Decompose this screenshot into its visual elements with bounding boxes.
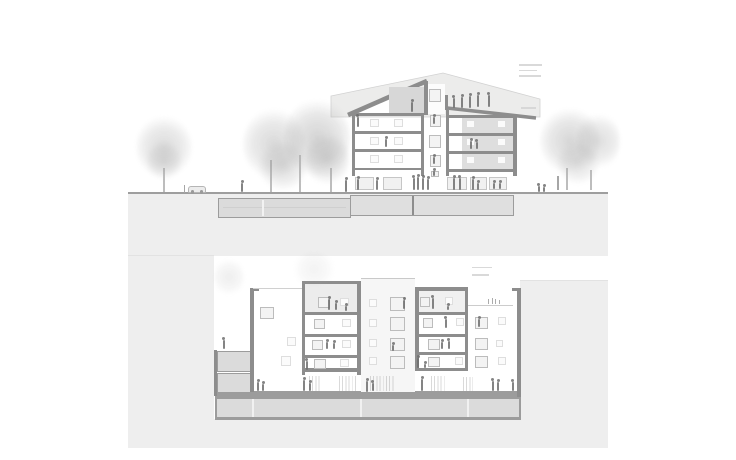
midleft-attic-room: [305, 284, 357, 311]
win-sprite: [260, 307, 274, 319]
person-sprite: [326, 342, 328, 349]
attic-wall: [424, 81, 428, 115]
floor-slab: [446, 115, 517, 118]
win-sprite: [475, 338, 488, 350]
midright-slab: [415, 352, 468, 355]
store-sprite: [355, 177, 374, 191]
floor-slab: [352, 113, 424, 116]
person-sprite: [309, 383, 311, 391]
winc-sprite: [281, 356, 291, 366]
tree-sprite: [556, 140, 600, 184]
win-sprite: [312, 340, 323, 350]
tree-sprite: [136, 116, 192, 178]
win-sprite: [314, 319, 325, 329]
right-parapet-cap: [512, 288, 521, 291]
person-sprite: [345, 180, 347, 192]
lower-terrain-right: [520, 280, 608, 448]
winc-sprite: [287, 337, 296, 346]
car: [188, 186, 206, 193]
midright-slab: [415, 334, 468, 337]
person-sprite: [262, 384, 264, 392]
trunk-sprite: [566, 168, 568, 190]
midleft-slab: [302, 312, 361, 315]
store-sprite: [489, 177, 507, 191]
left-block-cut-wall: [250, 288, 254, 392]
midright-bottom-slab: [415, 368, 468, 371]
person-sprite: [376, 180, 378, 190]
midleft-bottom-slab: [302, 368, 361, 371]
win-sprite: [314, 359, 326, 369]
tree-sprite: [258, 140, 308, 190]
bar-sprite: [472, 267, 492, 269]
winc-sprite: [456, 318, 464, 326]
trunk-sprite: [590, 170, 592, 190]
plant-sprite: [488, 299, 489, 304]
midright-wall-left: [415, 287, 419, 371]
plant-sprite: [495, 299, 496, 304]
person-sprite: [427, 179, 429, 190]
win-sprite: [431, 171, 439, 178]
winc-sprite: [342, 319, 351, 327]
trunk-sprite: [270, 160, 272, 192]
midright-attic-room: [419, 291, 465, 312]
hatch-sprite: [431, 376, 447, 391]
right-block-roof-line: [468, 305, 513, 306]
garage-deck-line: [223, 207, 346, 208]
post-sprite: [557, 176, 559, 190]
person-sprite: [357, 179, 359, 190]
person-sprite: [257, 382, 259, 392]
person-sprite: [417, 177, 419, 190]
store-sprite: [470, 177, 487, 191]
lower-terrain-bottom: [213, 419, 520, 448]
interior-wall: [421, 115, 424, 176]
exterior-wall-left: [352, 112, 355, 176]
person-sprite: [453, 178, 455, 190]
left-block-roof-line: [253, 288, 302, 289]
win-sprite: [423, 318, 433, 328]
right-cut-wall: [517, 288, 521, 397]
midright-slab: [415, 312, 468, 315]
person-sprite: [223, 340, 225, 349]
hatch-sprite: [309, 376, 322, 391]
interior-wall: [446, 110, 449, 176]
hatch-sprite: [339, 376, 357, 391]
winc-sprite: [394, 137, 403, 145]
midleft-wall-left: [302, 281, 305, 375]
person-sprite: [493, 183, 495, 190]
plant-sprite: [499, 300, 500, 304]
lower-terrain-left: [128, 255, 214, 448]
midleft-slab: [302, 334, 361, 337]
person-sprite: [478, 319, 480, 327]
winc-sprite: [455, 357, 463, 365]
win-sprite: [475, 317, 488, 329]
winc-sprite: [498, 317, 506, 325]
winc-sprite: [496, 340, 503, 347]
basement-under-building: [350, 195, 514, 217]
floor-slab: [446, 169, 517, 172]
drawing-sheet: [0, 0, 736, 460]
person-sprite: [413, 178, 415, 190]
person-sprite: [433, 171, 435, 176]
basement-divider: [252, 399, 254, 417]
winc-sprite: [370, 119, 379, 127]
floor-slab: [352, 149, 424, 152]
basement-parking: [215, 397, 521, 420]
person-sprite: [499, 183, 501, 190]
win-sprite: [428, 339, 440, 350]
tree-sprite: [146, 140, 182, 180]
floor-slab: [352, 168, 424, 171]
winc-sprite: [370, 137, 379, 145]
person-sprite: [497, 382, 499, 392]
basement-divider: [360, 399, 362, 417]
person-sprite: [441, 342, 443, 349]
stair-core-volume: [361, 278, 415, 392]
win-sprite: [430, 155, 441, 167]
floor-slab: [446, 151, 517, 154]
winc-sprite: [342, 340, 351, 348]
bar-sprite: [472, 274, 489, 276]
person-sprite: [433, 157, 435, 164]
winc-sprite: [498, 357, 506, 365]
person-sprite: [421, 379, 423, 392]
midright-wall-right: [465, 287, 469, 371]
person-sprite: [385, 139, 387, 147]
basement-divider: [467, 399, 469, 417]
tree-sprite: [576, 112, 620, 170]
chimney: [445, 95, 448, 110]
exterior-wall-right: [513, 114, 517, 176]
winc-sprite: [394, 119, 403, 127]
person-sprite: [492, 381, 494, 392]
bar-sprite: [519, 64, 542, 66]
person-sprite: [472, 179, 474, 190]
midleft-slab: [302, 355, 361, 358]
winc-sprite: [370, 155, 379, 163]
tree-sprite: [243, 108, 305, 180]
split-level-room-upper: [217, 351, 251, 372]
garage-divider: [262, 200, 264, 216]
trunk-sprite: [330, 168, 332, 192]
person-sprite: [477, 183, 479, 190]
stair-core-face: [428, 84, 445, 114]
person-sprite: [512, 382, 514, 391]
tree-sprite: [540, 108, 600, 174]
person-sprite: [445, 319, 447, 328]
underground-garage-left: [218, 198, 351, 218]
trunk-sprite: [299, 155, 301, 192]
person-sprite: [448, 341, 450, 350]
hatch-sprite: [463, 377, 473, 391]
person-sprite: [422, 178, 424, 190]
floor-slab: [352, 131, 424, 134]
win-sprite: [475, 356, 488, 368]
plant-sprite: [492, 298, 493, 305]
win-sprite: [429, 135, 441, 148]
attic-room: [389, 87, 424, 113]
midleft-wall-right: [357, 281, 360, 375]
midleft-top-slab: [302, 281, 361, 284]
floor-slab: [446, 133, 517, 136]
basement-divider-wall: [412, 196, 414, 215]
midright-top-slab: [415, 287, 468, 290]
winc-sprite: [340, 359, 349, 367]
person-sprite: [459, 178, 461, 190]
split-level-room-lower: [217, 373, 251, 393]
tree-sprite: [305, 130, 349, 186]
person-sprite: [303, 380, 305, 392]
store-sprite: [447, 177, 467, 191]
tree-sprite: [214, 258, 244, 296]
right-unit-back-wall: [462, 118, 513, 170]
trunk-sprite: [163, 168, 165, 192]
person-sprite: [333, 343, 335, 349]
winc-sprite: [394, 155, 403, 163]
win-sprite: [428, 357, 440, 367]
store-sprite: [383, 177, 403, 191]
